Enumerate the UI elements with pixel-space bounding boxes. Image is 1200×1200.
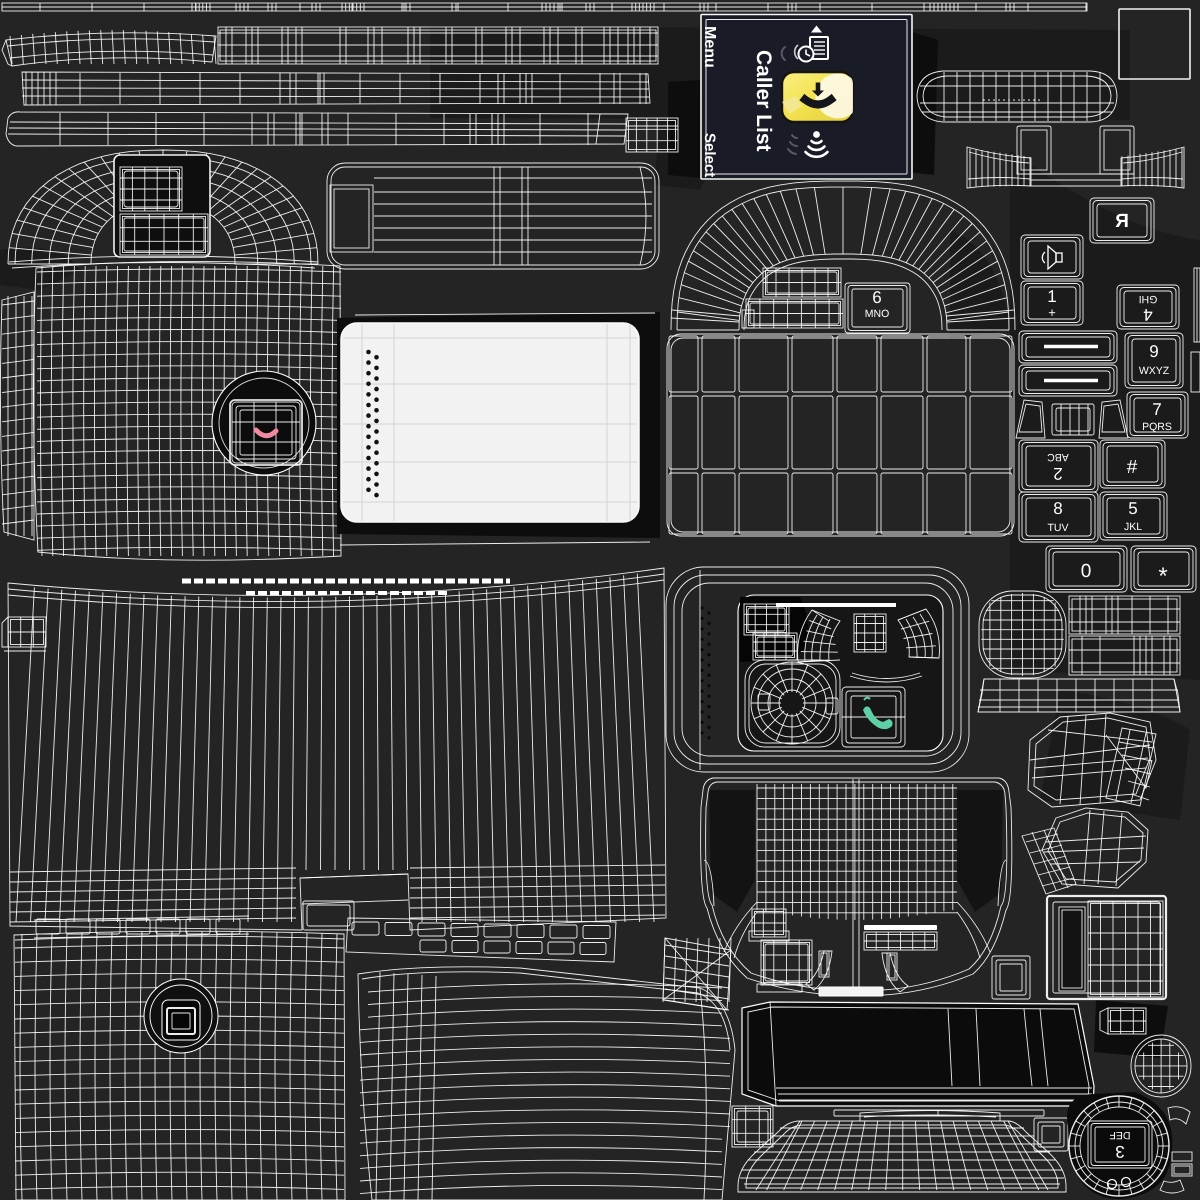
svg-text:6: 6 bbox=[872, 288, 881, 307]
svg-text:9: 9 bbox=[1149, 342, 1158, 361]
svg-text:*: * bbox=[1158, 563, 1167, 590]
svg-text:Caller List: Caller List bbox=[752, 50, 775, 152]
svg-text:R: R bbox=[1115, 211, 1129, 232]
svg-text:MNO: MNO bbox=[865, 308, 890, 320]
svg-text:Select: Select bbox=[701, 133, 718, 177]
svg-text:JKL: JKL bbox=[1124, 521, 1142, 533]
svg-text:#: # bbox=[1127, 457, 1138, 478]
svg-text:5: 5 bbox=[1128, 499, 1137, 518]
svg-text:+: + bbox=[1048, 305, 1056, 320]
svg-text:2: 2 bbox=[1053, 464, 1062, 483]
svg-text:7: 7 bbox=[1152, 400, 1161, 419]
svg-text:3: 3 bbox=[1115, 1142, 1124, 1161]
svg-text:DEF: DEF bbox=[1110, 1129, 1131, 1141]
svg-text:TUV: TUV bbox=[1048, 522, 1069, 534]
svg-text:WXYZ: WXYZ bbox=[1139, 365, 1170, 377]
svg-text:4: 4 bbox=[1143, 305, 1152, 324]
svg-text:Menu: Menu bbox=[701, 26, 718, 68]
svg-text:ABC: ABC bbox=[1047, 451, 1069, 463]
svg-text:1: 1 bbox=[1047, 287, 1056, 306]
svg-text:GHI: GHI bbox=[1139, 293, 1158, 305]
svg-text:8: 8 bbox=[1053, 499, 1062, 518]
svg-text:0: 0 bbox=[1081, 561, 1092, 582]
svg-text:PQRS: PQRS bbox=[1142, 421, 1172, 433]
